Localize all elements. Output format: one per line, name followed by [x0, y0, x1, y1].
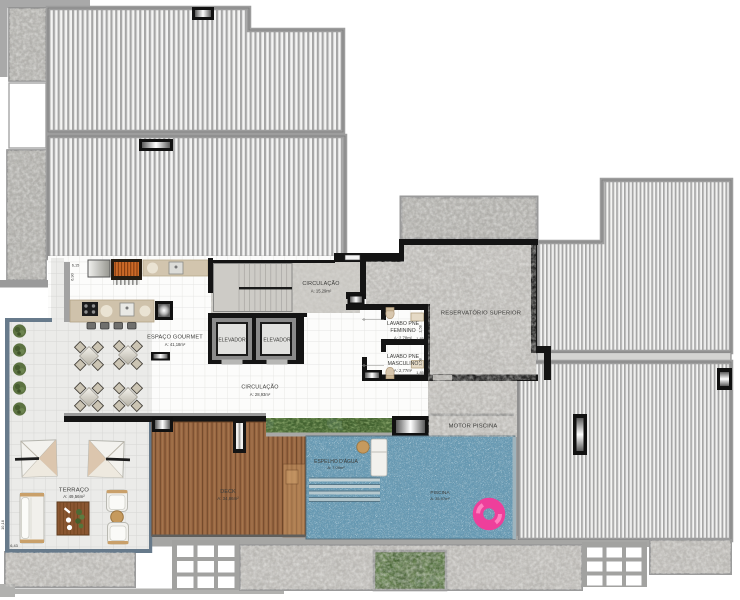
svg-text:RESERVATÓRIO SUPERIOR: RESERVATÓRIO SUPERIOR [441, 310, 521, 317]
svg-text:A: 34,86m²: A: 34,86m² [217, 496, 239, 501]
svg-text:DECK: DECK [220, 489, 236, 495]
svg-text:6,43: 6,43 [10, 543, 18, 548]
svg-text:CIRCULAÇÃO: CIRCULAÇÃO [241, 384, 278, 391]
svg-text:TERRAÇO: TERRAÇO [59, 488, 89, 494]
svg-text:LAVABO PNE: LAVABO PNE [387, 354, 420, 360]
svg-text:ESPAÇO GOURMET: ESPAÇO GOURMET [147, 335, 203, 341]
svg-text:A: 7,09m²: A: 7,09m² [327, 465, 345, 470]
svg-text:MOTOR PISCINA: MOTOR PISCINA [449, 424, 498, 430]
svg-text:ELEVADOR: ELEVADOR [263, 338, 291, 344]
svg-text:MASCULINO: MASCULINO [388, 361, 419, 367]
svg-text:A: 49,56m²: A: 49,56m² [63, 494, 85, 499]
svg-text:FEMININO: FEMININO [390, 328, 415, 334]
svg-text:6,90: 6,90 [70, 272, 75, 280]
svg-text:ELEVADOR: ELEVADOR [218, 338, 246, 344]
svg-text:10,18: 10,18 [0, 520, 5, 530]
svg-text:ESPELHO D'ÁGUA: ESPELHO D'ÁGUA [314, 458, 358, 465]
svg-text:A: 15,29m²: A: 15,29m² [311, 289, 332, 294]
svg-text:6,15: 6,15 [72, 263, 80, 268]
svg-text:1,58: 1,58 [418, 325, 423, 333]
svg-text:A: 2,78m²: A: 2,78m² [394, 336, 413, 341]
svg-text:A: 28,93m²: A: 28,93m² [250, 392, 271, 397]
svg-text:A: 41,18m²: A: 41,18m² [165, 342, 186, 347]
svg-text:CIRCULAÇÃO: CIRCULAÇÃO [302, 280, 339, 287]
svg-text:1,58: 1,58 [418, 358, 423, 366]
svg-text:1,85: 1,85 [416, 336, 424, 341]
svg-text:LAVABO PNE: LAVABO PNE [387, 321, 420, 327]
svg-text:A: 35,97m²: A: 35,97m² [430, 496, 450, 501]
svg-text:1,85: 1,85 [416, 370, 424, 375]
svg-text:A: 2,77m²: A: 2,77m² [394, 368, 413, 373]
